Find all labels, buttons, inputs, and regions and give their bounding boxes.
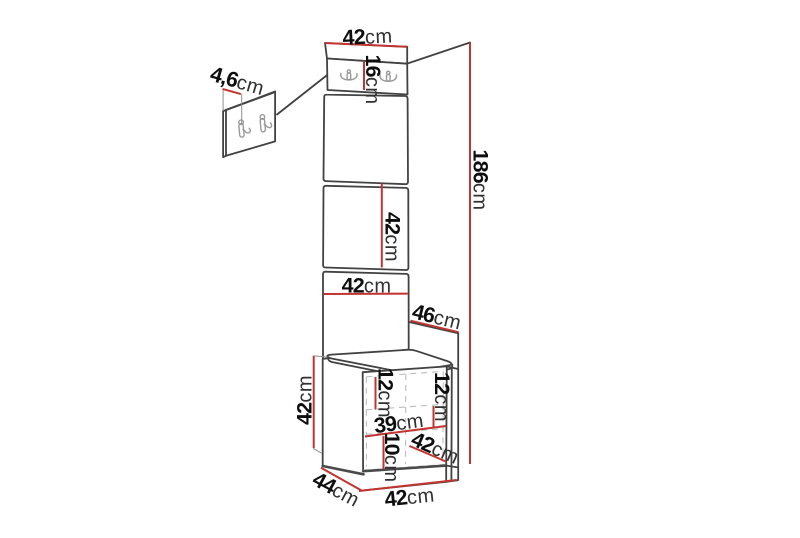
svg-text:42cm: 42cm: [380, 212, 404, 262]
svg-text:16cm: 16cm: [361, 55, 385, 105]
svg-text:10cm: 10cm: [380, 433, 404, 483]
svg-text:12cm: 12cm: [373, 368, 397, 418]
svg-text:42cm: 42cm: [293, 375, 317, 425]
svg-text:42cm: 42cm: [342, 23, 393, 50]
svg-text:12cm: 12cm: [430, 372, 454, 422]
svg-text:42cm: 42cm: [342, 274, 392, 298]
svg-text:186cm: 186cm: [469, 149, 493, 210]
